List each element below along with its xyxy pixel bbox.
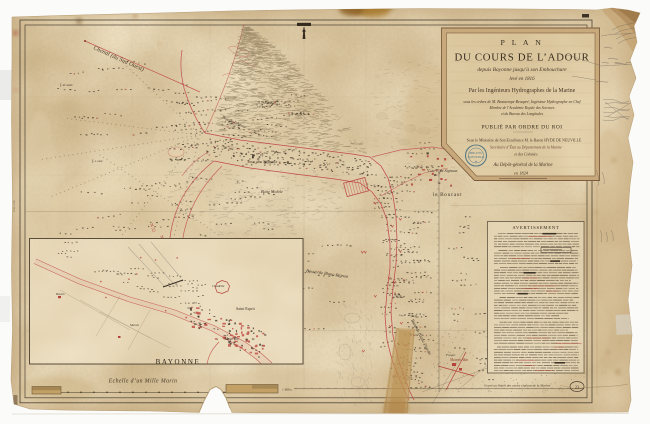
svg-text:1 Mille.: 1 Mille. (282, 388, 293, 392)
svg-text:NATIONALE: NATIONALE (468, 155, 484, 159)
svg-text:f. de sable: f. de sable (60, 83, 73, 87)
svg-text:P L A N: P L A N (501, 38, 544, 47)
svg-text:en 1824: en 1824 (514, 171, 529, 176)
svg-text:et du Bureau des Longitudes: et du Bureau des Longitudes (501, 112, 544, 116)
svg-text:et des Colonies: et des Colonies (514, 153, 538, 157)
svg-text:Membre de l’Académie Royale de: Membre de l’Académie Royale des Sciences (489, 106, 555, 110)
svg-text:PUBLIÉ PAR ORDRE DU ROI: PUBLIÉ PAR ORDRE DU ROI (481, 123, 562, 131)
svg-text:Forges: Forges (445, 353, 456, 357)
svg-text:Maison Akin: Maison Akin (449, 358, 468, 362)
svg-text:AVERTISSEMENT: AVERTISSEMENT (512, 225, 559, 230)
svg-text:Adour Riv.: Adour Riv. (223, 337, 239, 341)
svg-text:levé en 1816: levé en 1816 (509, 77, 535, 82)
svg-text:Gravé au Dépôt des cartes et p: Gravé au Dépôt des cartes et plans de la… (484, 383, 551, 387)
svg-text:Marais: Marais (129, 323, 140, 327)
svg-text:Echelle d’un Mille Marin: Echelle d’un Mille Marin (108, 379, 178, 385)
svg-text:f. s. vase: f. s. vase (92, 159, 103, 163)
svg-text:BAYONNE: BAYONNE (156, 358, 201, 366)
svg-text:le Boucaut: le Boucaut (433, 192, 462, 198)
svg-text:Saint Esprit: Saint Esprit (236, 306, 256, 311)
svg-text:Tour des Signaux: Tour des Signaux (247, 159, 277, 164)
svg-text:DU COURS DE L’ADOUR: DU COURS DE L’ADOUR (455, 52, 590, 64)
svg-text:Sous le Ministère de Son Excel: Sous le Ministère de Son Excellence M. l… (467, 139, 582, 143)
svg-text:Au Dépôt-général de la Marine: Au Dépôt-général de la Marine (492, 163, 552, 168)
svg-text:Bassin: Bassin (56, 292, 65, 296)
svg-text:Par les Ingénieurs Hydrographe: Par les Ingénieurs Hydrographes de la Ma… (469, 88, 576, 94)
svg-text:V.elle T. de Signaux: V.elle T. de Signaux (427, 168, 458, 173)
svg-text:depuis Bayonne jusqu’à son Emb: depuis Bayonne jusqu’à son Embouchure (477, 67, 567, 73)
svg-text:Citadelle: Citadelle (212, 284, 225, 288)
svg-text:Secrétaire d’État au Départeme: Secrétaire d’État au Département de la M… (490, 145, 562, 150)
svg-text:Butte Mobile: Butte Mobile (261, 189, 283, 194)
